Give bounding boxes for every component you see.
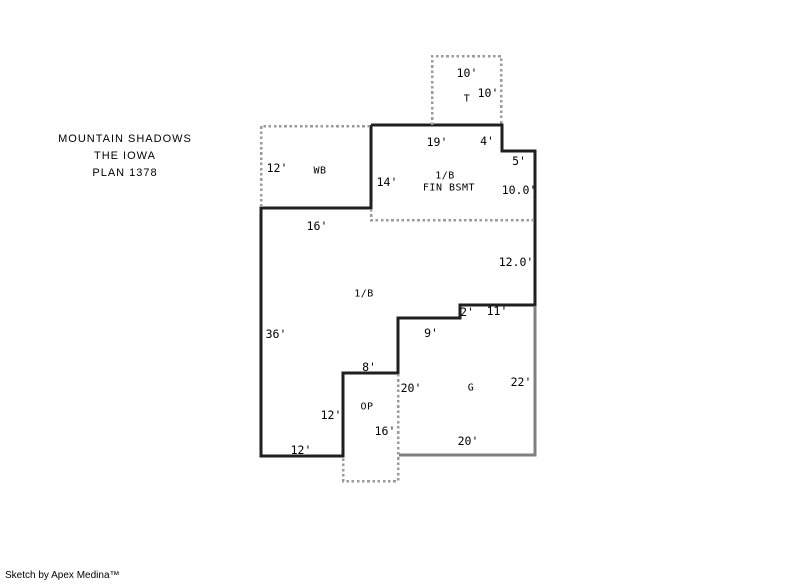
dim-16ft-top: 16' [307, 219, 328, 233]
dim-14ft: 14' [377, 175, 398, 189]
dim-wb-12ft: 12' [267, 161, 288, 175]
dim-10-0ft: 10.0' [502, 183, 537, 197]
dim-36ft: 36' [266, 327, 287, 341]
dim-12-0ft: 12.0' [499, 255, 534, 269]
dim-20ft-bottom: 20' [458, 434, 479, 448]
room-label-op: OP [360, 402, 373, 413]
dim-op-12ft: 12' [321, 408, 342, 422]
floor-plan-drawing: 10'T10'19'4'5'12'WB14'1/BFIN BSMT10.0'16… [0, 0, 800, 587]
dim-tub-depth-10ft: 10' [478, 86, 499, 100]
room-label-wb: WB [313, 166, 326, 177]
room-label-tub: T [464, 94, 471, 105]
sketch-credit: Sketch by Apex Medina™ [5, 570, 120, 581]
dim-tub-width-10ft: 10' [457, 66, 478, 80]
dim-5ft: 5' [512, 154, 526, 168]
dim-11ft: 11' [487, 304, 508, 318]
dim-garage-20ft-left: 20' [401, 381, 422, 395]
dim-8ft: 8' [362, 360, 376, 374]
room-label-bsmt-1b: 1/B [435, 171, 455, 182]
dim-2ft: 2' [460, 305, 474, 319]
dim-22ft: 22' [511, 375, 532, 389]
dim-op-16ft: 16' [375, 424, 396, 438]
room-label-main-1b: 1/B [354, 289, 374, 300]
dim-12ft-bottom: 12' [291, 443, 312, 457]
dim-4ft: 4' [480, 134, 494, 148]
dim-9ft: 9' [424, 326, 438, 340]
dim-19ft: 19' [427, 135, 448, 149]
sketch-canvas: MOUNTAIN SHADOWS THE IOWA PLAN 1378 10'T… [0, 0, 800, 587]
fin-bsmt-divider-dashed [371, 209, 534, 220]
room-label-fin-bsmt: FIN BSMT [423, 183, 475, 194]
room-label-garage: G [468, 383, 475, 394]
